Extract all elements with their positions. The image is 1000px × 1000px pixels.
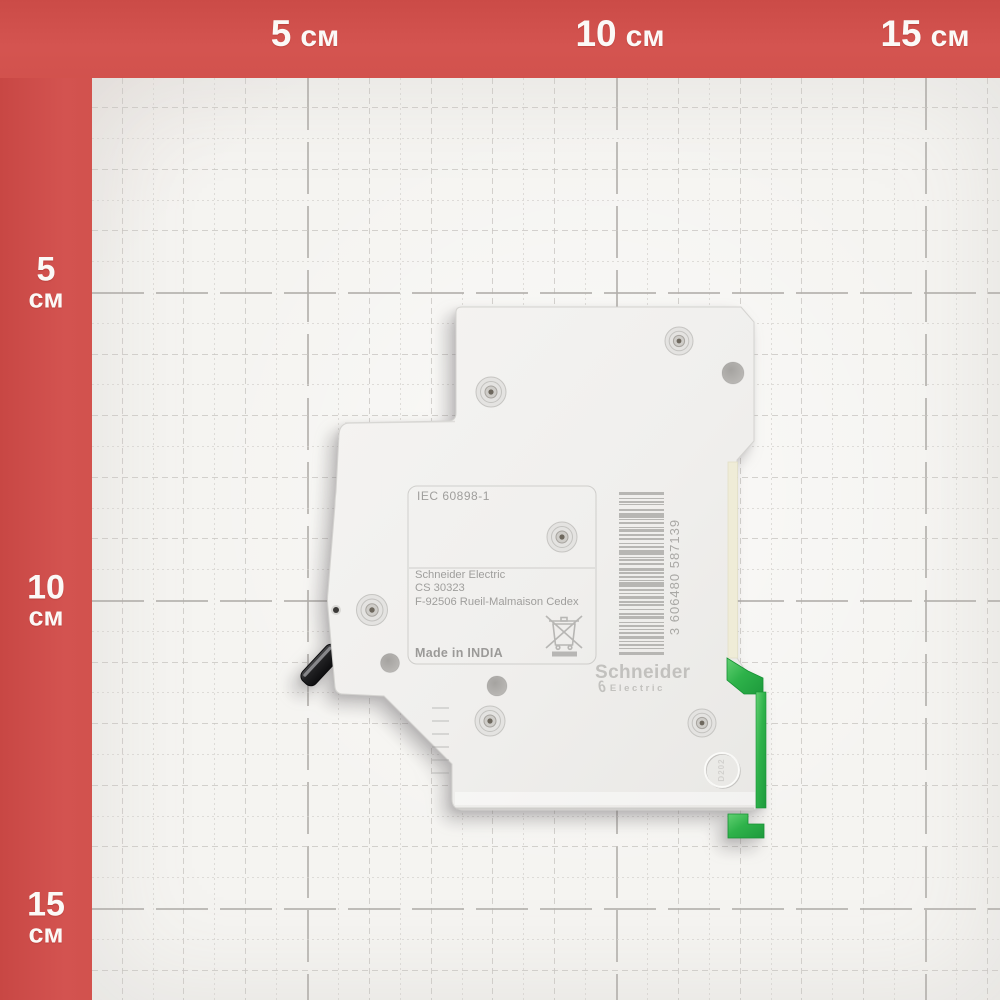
barcode-bar bbox=[619, 589, 664, 591]
pivot-pin-center bbox=[333, 607, 339, 613]
barcode-bar bbox=[619, 648, 664, 649]
barcode-bar bbox=[619, 563, 664, 564]
barcode-bar bbox=[619, 543, 664, 544]
manufacturer-city: F-92506 Rueil-Malmaison Cedex bbox=[415, 596, 579, 609]
barcode-bar bbox=[619, 636, 664, 639]
brand-sub: Electric bbox=[610, 683, 665, 694]
mounting-hole bbox=[381, 654, 400, 673]
barcode-bar bbox=[619, 616, 664, 619]
manufacturer-box: CS 30323 bbox=[415, 582, 579, 595]
barcode-bar bbox=[619, 572, 664, 573]
barcode-bar bbox=[619, 652, 664, 655]
barcode-bar bbox=[619, 613, 664, 615]
barcode-bar bbox=[619, 593, 664, 594]
barcode-bar bbox=[619, 529, 664, 532]
barcode-bar bbox=[619, 641, 664, 642]
din-clip-bottom bbox=[728, 814, 764, 838]
barcode-bar bbox=[619, 644, 664, 646]
barcode-bar bbox=[619, 519, 664, 520]
mounting-hole bbox=[722, 362, 744, 384]
barcode-bar bbox=[619, 576, 664, 578]
screw-rivet bbox=[547, 522, 577, 552]
screw-rivet bbox=[688, 709, 716, 737]
barcode-bar bbox=[619, 580, 664, 581]
bottom-bevel bbox=[455, 792, 755, 805]
barcode-bar bbox=[619, 501, 664, 503]
schneider-logo: Schneider ∂ Electric bbox=[595, 663, 735, 696]
barcode-bar bbox=[619, 557, 664, 558]
manufacturer-address: Schneider Electric CS 30323 F-92506 Ruei… bbox=[415, 569, 579, 609]
barcode-bar bbox=[619, 622, 664, 623]
circuit-breaker: IEC 60898-1 Schneider Electric CS 30323 … bbox=[0, 0, 1000, 1000]
barcode-bar bbox=[619, 538, 664, 540]
barcode bbox=[619, 492, 664, 658]
barcode-bar bbox=[619, 609, 664, 610]
barcode-bar bbox=[619, 498, 664, 499]
origin-label: Made in INDIA bbox=[415, 646, 503, 660]
barcode-bar bbox=[619, 509, 664, 511]
din-clip-side bbox=[756, 692, 766, 808]
barcode-bar bbox=[619, 527, 664, 528]
product-photo-stage: 5 см 10 см 15 см 5 см 10 см 15 см bbox=[0, 0, 1000, 1000]
barcode-bar bbox=[619, 601, 664, 602]
barcode-bar bbox=[619, 582, 664, 586]
standard-label: IEC 60898-1 bbox=[417, 489, 490, 503]
barcode-bar bbox=[619, 568, 664, 571]
mounting-hole bbox=[487, 676, 507, 696]
brand-loop-icon: ∂ bbox=[598, 680, 606, 696]
barcode-bar bbox=[619, 513, 664, 517]
barcode-bar bbox=[619, 534, 664, 535]
screw-rivet bbox=[357, 595, 388, 626]
barcode-bar bbox=[619, 504, 664, 505]
mold-stamp-text: D202 bbox=[717, 730, 727, 810]
screw-rivet bbox=[476, 377, 506, 407]
barcode-bar bbox=[619, 632, 664, 634]
cream-strip bbox=[728, 462, 738, 658]
barcode-bar bbox=[619, 546, 664, 548]
barcode-bar bbox=[619, 550, 664, 554]
barcode-bar bbox=[619, 604, 664, 606]
screw-rivet bbox=[665, 327, 693, 355]
barcode-bar bbox=[619, 629, 664, 630]
barcode-bar bbox=[619, 522, 664, 524]
barcode-bar bbox=[619, 559, 664, 561]
barcode-bar bbox=[619, 492, 664, 495]
screw-rivet bbox=[475, 706, 505, 736]
manufacturer-name: Schneider Electric bbox=[415, 569, 579, 582]
barcode-bar bbox=[619, 596, 664, 599]
barcode-bar bbox=[619, 625, 664, 627]
barcode-number: 3 606480 587139 bbox=[667, 497, 683, 657]
